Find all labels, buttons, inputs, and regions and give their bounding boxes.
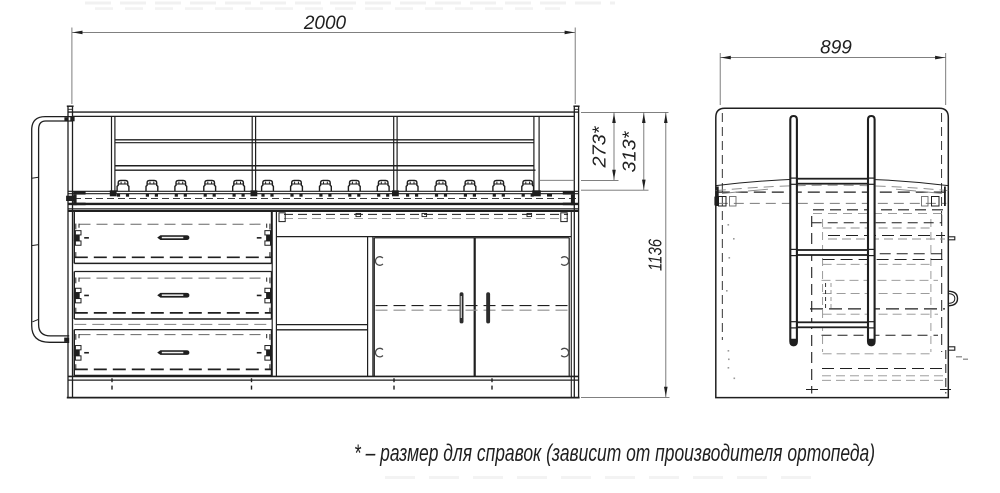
svg-text:2000: 2000 <box>303 13 347 34</box>
svg-text:899: 899 <box>820 38 852 59</box>
svg-text:273*: 273* <box>589 126 610 169</box>
svg-text:1136: 1136 <box>645 238 666 271</box>
svg-text:313*: 313* <box>619 131 640 173</box>
svg-text:* – размер для справок (зависи: * – размер для справок (зависит от произ… <box>354 440 875 467</box>
